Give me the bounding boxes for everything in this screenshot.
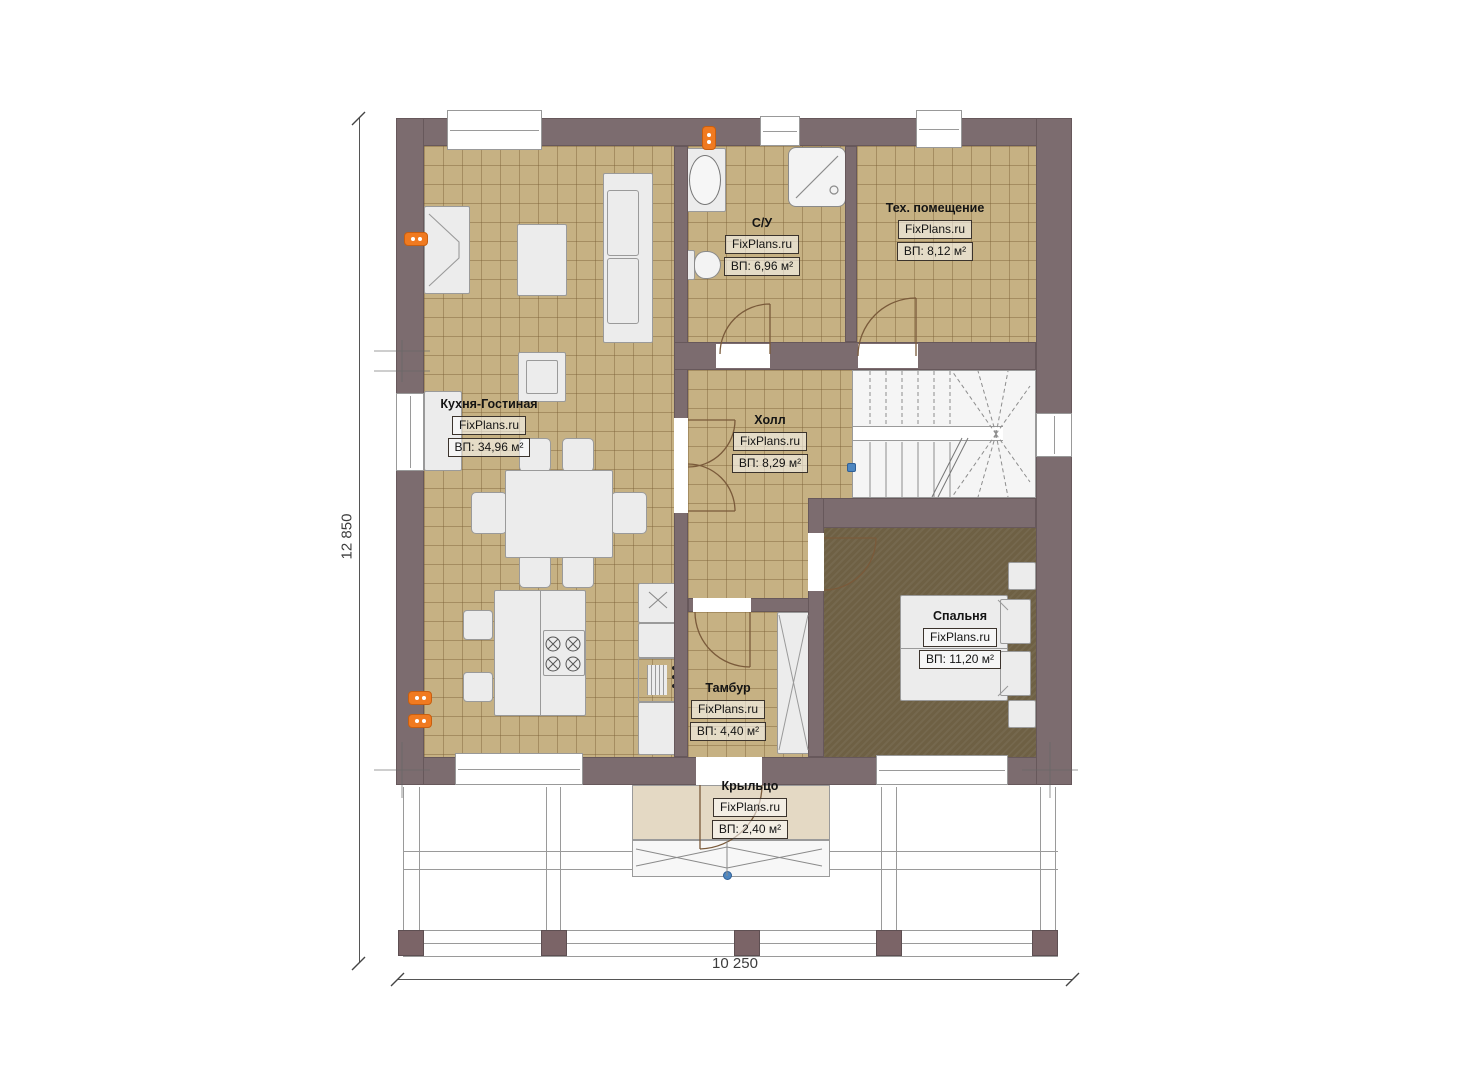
room-area: ВП: 6,96 м² xyxy=(724,257,800,276)
stove-hob xyxy=(543,630,585,676)
dining-chair xyxy=(519,554,551,588)
sofa-cushion xyxy=(607,258,639,324)
coffee-table xyxy=(517,224,567,296)
room-brand: FixPlans.ru xyxy=(898,220,972,239)
window-kitchen-bottom xyxy=(455,753,583,785)
nightstand xyxy=(1008,562,1036,590)
dimension-line-width xyxy=(397,979,1073,980)
outlet-socket xyxy=(404,232,428,246)
room-name: Кухня-Гостиная xyxy=(440,397,537,411)
dining-chair xyxy=(562,554,594,588)
room-name: Тамбур xyxy=(705,681,750,695)
island-divider xyxy=(540,591,541,715)
deck-edge-line xyxy=(830,851,1058,852)
door-gap-bedroom xyxy=(808,533,824,591)
bar-stool xyxy=(463,672,493,702)
deck-post xyxy=(734,930,760,956)
porch-steps xyxy=(632,840,830,877)
deck-beam-line xyxy=(403,956,1058,957)
room-area: ВП: 8,29 м² xyxy=(732,454,808,473)
shower xyxy=(788,147,846,207)
dimension-height-label: 12 850 xyxy=(339,502,356,572)
room-name: Холл xyxy=(754,413,785,427)
deck-side-rail xyxy=(896,787,897,930)
counter-sink-cabinet xyxy=(638,583,676,623)
deck-side-rail xyxy=(881,787,882,930)
room-label-tech-room: Тех. помещение FixPlans.ru ВП: 8,12 м² xyxy=(868,201,1002,261)
outlet-socket xyxy=(408,714,432,728)
door-gap-bathroom xyxy=(716,344,770,368)
room-name: Крыльцо xyxy=(722,779,779,793)
room-area: ВП: 11,20 м² xyxy=(919,650,1001,669)
wardrobe xyxy=(777,612,810,754)
stairs-landing-rail xyxy=(853,426,1003,441)
stairs-axis-marker xyxy=(847,463,856,472)
room-area: ВП: 4,40 м² xyxy=(690,722,766,741)
dimension-width-label: 10 250 xyxy=(655,955,815,972)
deck-edge-line xyxy=(830,869,1058,870)
room-label-porch: Крыльцо FixPlans.ru ВП: 2,40 м² xyxy=(698,779,802,839)
deck-edge-line xyxy=(403,851,632,852)
room-label-vestibule: Тамбур FixPlans.ru ВП: 4,40 м² xyxy=(676,681,780,741)
deck-post xyxy=(876,930,902,956)
door-gap-living-hall xyxy=(674,418,688,513)
tv-unit xyxy=(424,206,470,294)
sofa-cushion xyxy=(607,190,639,256)
deck-post xyxy=(398,930,424,956)
room-label-bedroom: Спальня FixPlans.ru ВП: 11,20 м² xyxy=(903,609,1017,669)
deck-side-rail xyxy=(560,787,561,930)
outlet-socket xyxy=(702,126,716,150)
room-brand: FixPlans.ru xyxy=(923,628,997,647)
wall-bedroom-top xyxy=(808,498,1036,528)
room-area: ВП: 2,40 м² xyxy=(712,820,788,839)
deck-edge-line xyxy=(403,869,632,870)
deck-beam-line xyxy=(403,943,1058,944)
room-name: Спальня xyxy=(933,609,987,623)
window-living-left xyxy=(396,393,424,471)
wall-bath-tech-divider xyxy=(845,146,857,342)
room-name: Тех. помещение xyxy=(886,201,985,215)
deck-post xyxy=(541,930,567,956)
room-brand: FixPlans.ru xyxy=(733,432,807,451)
nightstand xyxy=(1008,700,1036,728)
dining-table xyxy=(505,470,613,558)
bar-stool xyxy=(463,610,493,640)
room-label-kitchen-living: Кухня-Гостиная FixPlans.ru ВП: 34,96 м² xyxy=(433,397,545,457)
room-brand: FixPlans.ru xyxy=(452,416,526,435)
room-label-hall: Холл FixPlans.ru ВП: 8,29 м² xyxy=(718,413,822,473)
counter-cabinet xyxy=(638,623,676,658)
room-area: ВП: 8,12 м² xyxy=(897,242,973,261)
dimension-line-height xyxy=(359,118,360,963)
window-bedroom-bottom xyxy=(876,755,1008,785)
door-gap-tech xyxy=(858,344,918,368)
deck-side-rail xyxy=(546,787,547,930)
dining-chair xyxy=(471,492,507,534)
window-tech-top xyxy=(916,110,962,148)
room-brand: FixPlans.ru xyxy=(725,235,799,254)
floor-plan-page: 10 250 12 850 xyxy=(0,0,1474,1080)
porch-axis-marker xyxy=(723,871,732,880)
door-gap-vestibule xyxy=(693,598,751,612)
room-brand: FixPlans.ru xyxy=(713,798,787,817)
deck-beam-line xyxy=(403,930,1058,931)
armchair-seat xyxy=(526,360,558,394)
dining-chair xyxy=(611,492,647,534)
window-stairs-right xyxy=(1036,413,1072,457)
sink-basin xyxy=(689,155,721,205)
room-label-bathroom: С/У FixPlans.ru ВП: 6,96 м² xyxy=(710,216,814,276)
window-bath-top xyxy=(760,116,800,146)
dining-chair xyxy=(562,438,594,472)
outlet-socket xyxy=(408,691,432,705)
counter-cabinet xyxy=(638,702,676,755)
room-brand: FixPlans.ru xyxy=(691,700,765,719)
room-name: С/У xyxy=(752,216,772,230)
window-living-top xyxy=(447,110,542,150)
deck-post xyxy=(1032,930,1058,956)
appliance-dishwasher xyxy=(638,658,676,702)
room-area: ВП: 34,96 м² xyxy=(448,438,531,457)
